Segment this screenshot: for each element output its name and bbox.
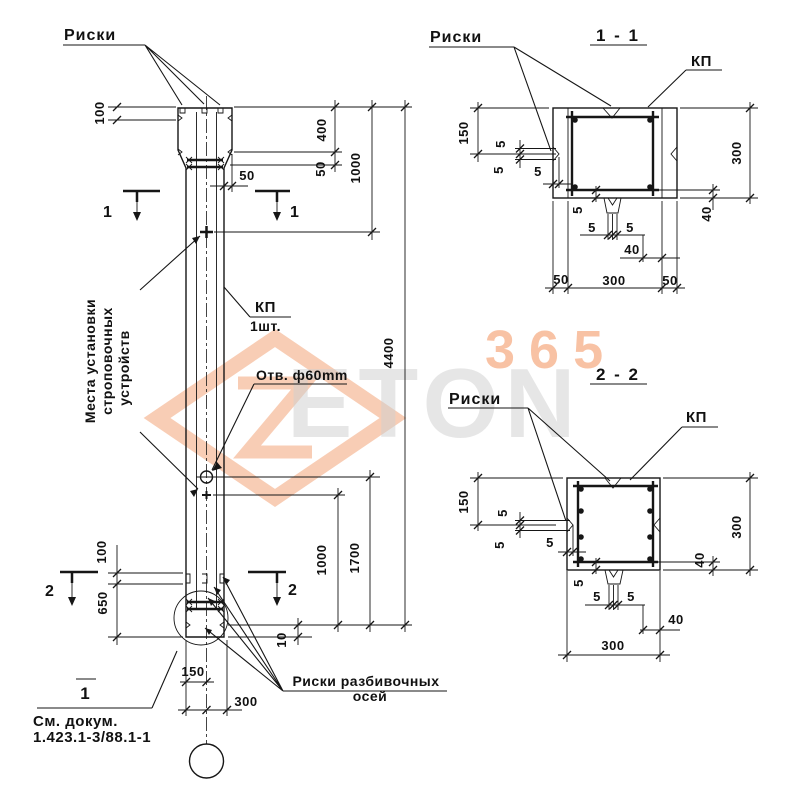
s22-dim-300b: 300 — [601, 638, 624, 653]
s11-riski-label: Риски — [430, 29, 482, 46]
s11-dim-5b: 5 — [491, 166, 506, 174]
section-1-1-title: 1 - 1 — [596, 26, 640, 45]
section1-mark-left: 1 — [103, 204, 113, 221]
s22-dim-300r: 300 — [729, 515, 744, 538]
strop-label-line2: строповочных — [99, 307, 115, 415]
axis-riski-label-line1: Риски разбивочных — [292, 673, 439, 689]
see-doc-line1: См. докум. — [33, 713, 118, 730]
column-drawing-svg: 365 ETON 1 — [0, 0, 800, 800]
dim-150: 150 — [181, 664, 204, 679]
hole-label: Отв. ф60mm — [256, 367, 348, 383]
strop-label-line1: Места установки — [82, 299, 98, 423]
see-doc-line2: 1.423.1-3/88.1-1 — [33, 729, 151, 746]
section-1-1: 1 - 1 Риски КП 150 5 5 5 300 40 5 5 5 40… — [429, 26, 758, 294]
dim-1000-top: 1000 — [348, 153, 363, 184]
dim-100-top: 100 — [92, 101, 107, 124]
s22-notches — [567, 478, 660, 584]
s11-dim-150: 150 — [456, 121, 471, 144]
detail-mark-label: 1 — [80, 684, 91, 703]
section2-mark-right: 2 — [288, 582, 298, 599]
dim-10: 10 — [274, 632, 289, 647]
axis-bubble — [190, 744, 224, 778]
s11-rebar-dots — [572, 117, 653, 190]
s11-dim-300b: 300 — [602, 273, 625, 288]
s11-dim-50r: 50 — [662, 273, 677, 288]
s11-dim-5f: 5 — [626, 220, 634, 235]
s22-riski-label: Риски — [449, 391, 501, 408]
dim-650: 650 — [95, 591, 110, 614]
s22-rebar-cage — [573, 481, 658, 567]
s22-dim-40r: 40 — [692, 552, 707, 567]
section2-mark-left: 2 — [45, 583, 55, 600]
s11-dim-300r: 300 — [729, 141, 744, 164]
drawing-sheet: 365 ETON 1 — [0, 0, 800, 800]
kp-qty-label: 1шт. — [250, 318, 281, 334]
section1-mark-right: 1 — [290, 204, 300, 221]
s22-dim-5a: 5 — [495, 509, 510, 517]
dim-50-horiz: 50 — [239, 168, 254, 183]
bottom-riska-notches — [186, 574, 224, 583]
dim-1700: 1700 — [347, 543, 362, 574]
lower-point-cross — [202, 491, 211, 499]
s11-dim-5e: 5 — [588, 220, 596, 235]
s22-dim-5f: 5 — [627, 589, 635, 604]
strop-label-line3: устройств — [116, 330, 132, 406]
s22-dim-40b: 40 — [668, 612, 683, 627]
s11-dim-40r: 40 — [699, 206, 714, 221]
s22-outer — [567, 478, 660, 570]
section-2-2-title: 2 - 2 — [596, 365, 640, 384]
s22-rebar-dots — [578, 486, 653, 562]
s22-dim-150: 150 — [456, 490, 471, 513]
s11-kp-label: КП — [691, 53, 712, 70]
riski-label: Риски — [64, 27, 116, 44]
dim-1000-bottom: 1000 — [314, 545, 329, 576]
s22-kp-label: КП — [686, 409, 707, 426]
s11-dim-40b: 40 — [624, 242, 639, 257]
watermark-name: ETON — [287, 348, 581, 458]
axis-riski-label-line2: осей — [353, 688, 388, 704]
kp-label: КП — [255, 299, 276, 316]
s11-rebar-cage — [566, 111, 659, 196]
strop-point-cross — [200, 226, 213, 238]
dim-400: 400 — [314, 118, 329, 141]
dim-50-vert: 50 — [313, 161, 328, 176]
s11-dim-5c: 5 — [534, 164, 542, 179]
s11-dim-5d: 5 — [570, 206, 585, 214]
s22-dim-5c: 5 — [546, 535, 554, 550]
dim-4400: 4400 — [381, 338, 396, 369]
dim-300: 300 — [234, 694, 257, 709]
dim-100-bottom: 100 — [94, 540, 109, 563]
s11-dim-50l: 50 — [553, 272, 568, 287]
s22-dim-5e: 5 — [593, 589, 601, 604]
s11-dim-5a: 5 — [493, 140, 508, 148]
s22-dim-5b: 5 — [492, 541, 507, 549]
s22-dim-5d: 5 — [571, 579, 586, 587]
